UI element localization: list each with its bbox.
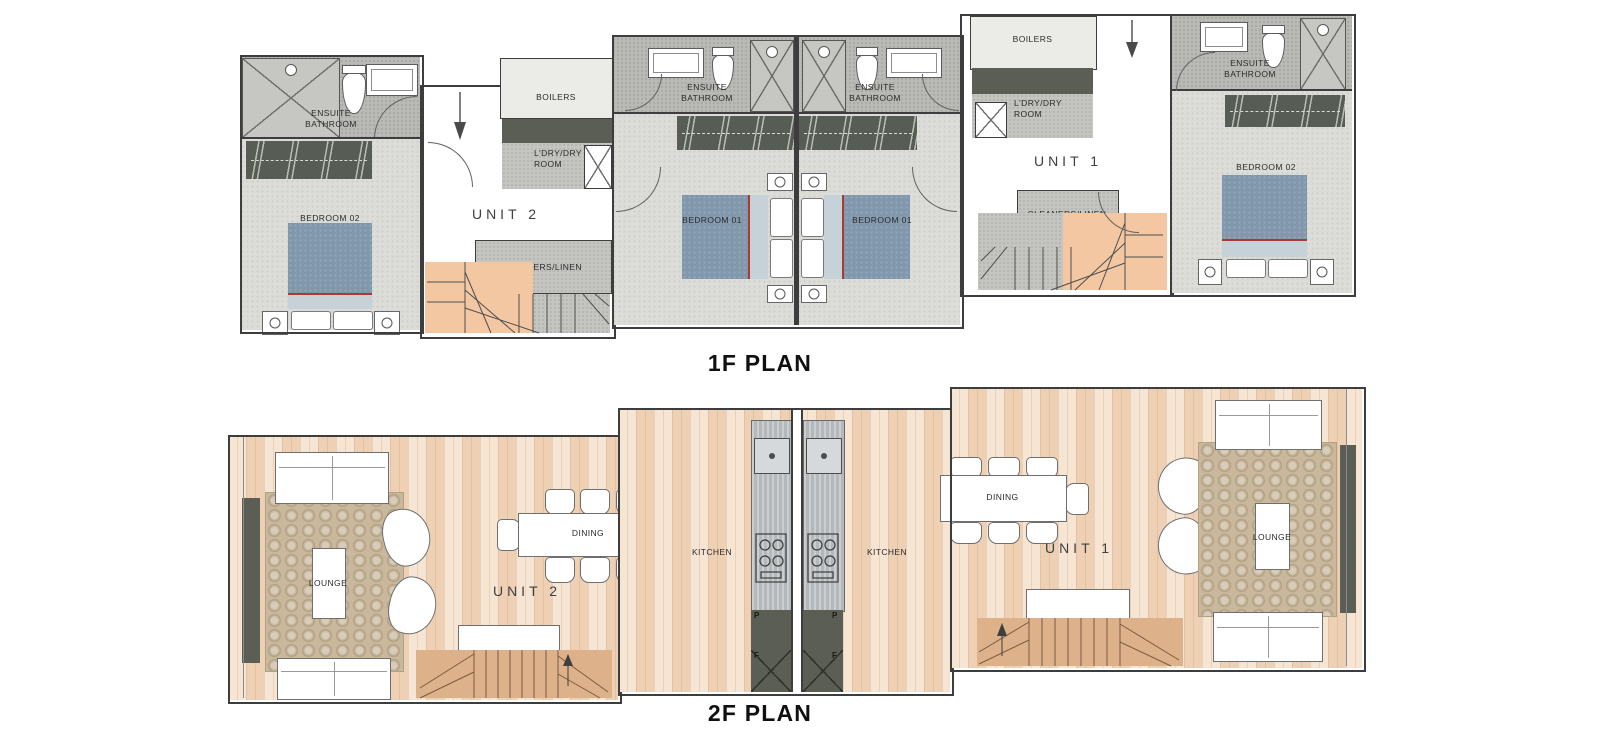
- bed-icon: [682, 195, 748, 279]
- plan-title-1f: 1F PLAN: [660, 350, 860, 377]
- party-wall: [794, 35, 799, 325]
- sink-icon: [366, 64, 418, 96]
- wall-partition: [612, 112, 960, 114]
- joinery-unit: [502, 119, 612, 143]
- room-label-bedroom-01: BEDROOM 01: [662, 215, 762, 226]
- room-label-laundry: L'DRY/DRY ROOM: [534, 148, 590, 170]
- sofa-icon: [1215, 400, 1322, 450]
- dining-chair-icon: [1065, 483, 1089, 515]
- fridge-unit: [803, 650, 843, 692]
- stairs-icon: [423, 262, 611, 333]
- room-label-laundry: L'DRY/DRY ROOM: [1014, 98, 1070, 120]
- door-swing-icon: [428, 142, 473, 187]
- wardrobe-rail-icon: [682, 133, 790, 134]
- shower-icon: [750, 40, 794, 112]
- shower-head-icon: [818, 46, 830, 58]
- pantry-label: P: [832, 612, 837, 620]
- shower-head-icon: [1317, 24, 1329, 36]
- unit-1-label-1f: UNIT 1: [998, 153, 1138, 169]
- bench-icon: [458, 625, 560, 653]
- bed-foot-icon: [824, 195, 842, 279]
- bed-foot-icon: [288, 295, 372, 309]
- room-label-bedroom-02: BEDROOM 02: [1176, 162, 1356, 173]
- room-label-dining: DINING: [940, 492, 1065, 503]
- unit-2-label-1f: UNIT 2: [436, 206, 576, 222]
- window-wall: [1346, 389, 1347, 666]
- dining-chair-icon: [950, 522, 982, 544]
- sofa-icon: [275, 452, 389, 504]
- room-label-ensuite-bathroom: ENSUITE BATHROOM: [296, 108, 366, 130]
- pillow-icon: [801, 198, 824, 237]
- pillow-icon: [1226, 259, 1266, 278]
- wardrobe-icon: [677, 116, 795, 150]
- dining-chair-icon: [545, 489, 575, 515]
- sofa-icon: [1213, 612, 1323, 662]
- bed-foot-icon: [1222, 241, 1307, 257]
- room-label-lounge: LOUNGE: [294, 578, 362, 589]
- bench-icon: [1026, 589, 1130, 619]
- nightstand-icon: [262, 311, 288, 335]
- bed-throw-icon: [842, 195, 844, 279]
- stove-icon: [754, 532, 788, 584]
- joinery-unit: [972, 68, 1093, 94]
- room-label-bedroom-02: BEDROOM 02: [241, 213, 419, 224]
- dining-chair-icon: [545, 557, 575, 583]
- pillow-icon: [770, 239, 793, 278]
- room-label-boilers: BOILERS: [970, 34, 1095, 45]
- room-boilers-floor-u2: [500, 58, 614, 119]
- wardrobe-rail-icon: [804, 133, 912, 134]
- nightstand-icon: [374, 311, 400, 335]
- nightstand-icon: [801, 285, 827, 303]
- shower-icon: [1300, 18, 1346, 90]
- plan-title-2f: 2F PLAN: [660, 700, 860, 727]
- bed-foot-icon: [750, 195, 768, 279]
- floorplan-scene: ENSUITE BATHROOM BEDROOM 02 BOILERS L'DR…: [0, 0, 1600, 750]
- fireplace-icon: [1340, 445, 1356, 613]
- sofa-icon: [277, 658, 391, 700]
- pillow-icon: [1268, 259, 1308, 278]
- wardrobe-icon: [246, 141, 372, 179]
- unit-2-label-2f: UNIT 2: [457, 583, 597, 599]
- nightstand-icon: [1310, 259, 1334, 285]
- pillow-icon: [333, 311, 373, 330]
- sink-icon: [1200, 22, 1248, 52]
- room-label-kitchen: KITCHEN: [677, 547, 747, 558]
- party-wall: [791, 408, 793, 692]
- kitchen-sink-icon: [754, 438, 790, 474]
- fridge-label: F: [754, 652, 759, 660]
- nightstand-icon: [801, 173, 827, 191]
- room-label-kitchen: KITCHEN: [852, 547, 922, 558]
- wardrobe-rail-icon: [251, 160, 367, 161]
- room-label-boilers: BOILERS: [500, 92, 612, 103]
- nightstand-icon: [767, 285, 793, 303]
- pillow-icon: [801, 239, 824, 278]
- room-label-bedroom-01: BEDROOM 01: [832, 215, 932, 226]
- room-label-ensuite-bathroom: ENSUITE BATHROOM: [1215, 58, 1285, 80]
- room-label-ensuite-bathroom: ENSUITE BATHROOM: [840, 82, 910, 104]
- wardrobe-rail-icon: [1230, 111, 1340, 112]
- fireplace-icon: [242, 498, 260, 663]
- entry-arrow-icon: [1124, 18, 1140, 60]
- room-label-ensuite-bathroom: ENSUITE BATHROOM: [672, 82, 742, 104]
- stairs-icon: [977, 618, 1183, 666]
- stove-icon: [806, 532, 840, 584]
- dining-chair-icon: [580, 557, 610, 583]
- pillow-icon: [291, 311, 331, 330]
- bed-icon: [844, 195, 910, 279]
- pantry-label: P: [754, 612, 759, 620]
- room-label-lounge: LOUNGE: [1238, 532, 1306, 543]
- unit-1-label-2f: UNIT 1: [1009, 540, 1149, 556]
- kitchen-sink-icon: [806, 438, 842, 474]
- window-wall: [243, 437, 244, 698]
- entry-arrow-icon: [452, 90, 468, 142]
- wardrobe-icon: [799, 116, 917, 150]
- nightstand-icon: [767, 173, 793, 191]
- party-wall-gap: [793, 408, 801, 692]
- fridge-label: F: [832, 652, 837, 660]
- shower-head-icon: [766, 46, 778, 58]
- dining-chair-icon: [580, 489, 610, 515]
- nightstand-icon: [1198, 259, 1222, 285]
- bed-icon: [288, 223, 372, 293]
- stairs-icon: [416, 650, 612, 698]
- wall-partition: [240, 137, 420, 139]
- laundry-chute-icon: [975, 102, 1007, 138]
- pillow-icon: [770, 198, 793, 237]
- shower-head-icon: [285, 64, 297, 76]
- bed-icon: [1222, 175, 1307, 239]
- wardrobe-icon: [1225, 95, 1345, 127]
